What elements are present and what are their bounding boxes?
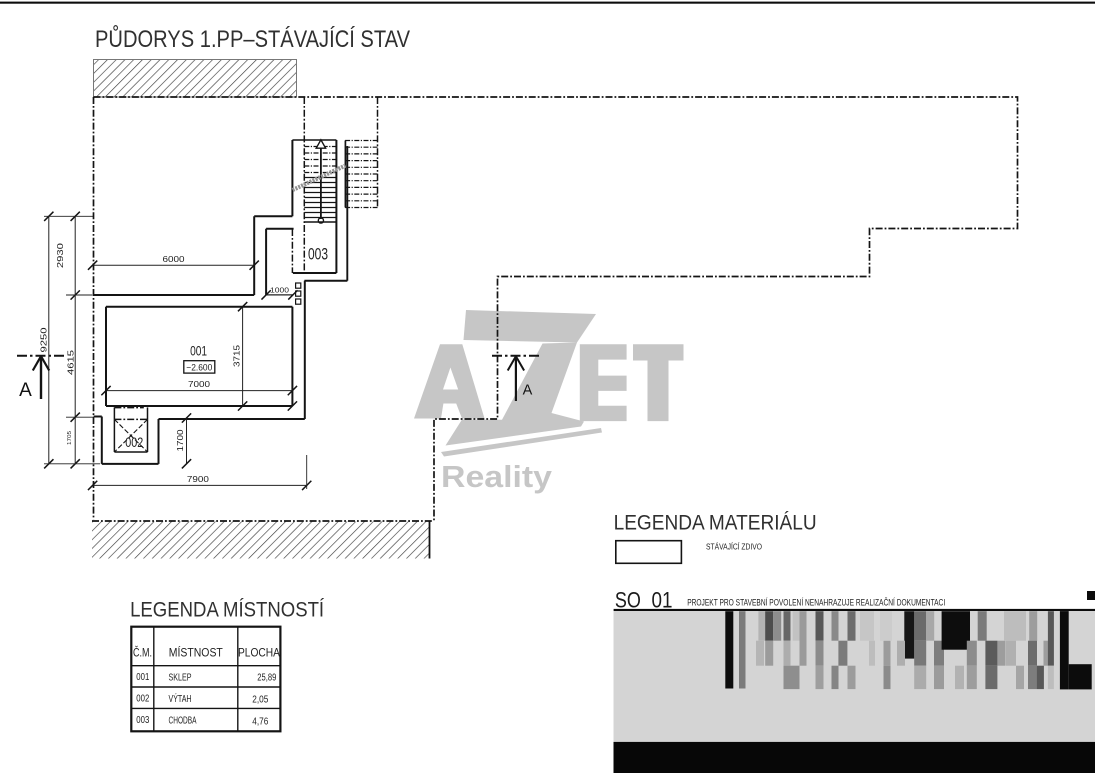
svg-text:A: A <box>19 380 32 401</box>
svg-text:01: 01 <box>652 588 673 613</box>
svg-text:SKLEP: SKLEP <box>169 673 192 684</box>
svg-text:002: 002 <box>136 694 149 705</box>
svg-text:2,05: 2,05 <box>252 695 268 706</box>
svg-text:2930: 2930 <box>56 242 65 268</box>
svg-text:001: 001 <box>190 343 207 359</box>
svg-text:3715: 3715 <box>232 344 241 367</box>
svg-text:25,89: 25,89 <box>257 673 276 684</box>
svg-text:PŮDORYS 1.PP–STÁVAJÍCÍ STAV: PŮDORYS 1.PP–STÁVAJÍCÍ STAV <box>95 24 411 53</box>
svg-text:7000: 7000 <box>188 380 211 389</box>
svg-text:7900: 7900 <box>187 475 210 484</box>
svg-text:CHODBA: CHODBA <box>169 716 197 727</box>
svg-text:1705: 1705 <box>67 431 73 445</box>
svg-text:Č.M.: Č.M. <box>133 647 152 660</box>
svg-text:Reality: Reality <box>441 459 553 494</box>
svg-text:A: A <box>523 383 533 399</box>
svg-text:003: 003 <box>136 715 149 726</box>
svg-text:001: 001 <box>136 672 149 683</box>
svg-text:STÁVAJÍCÍ ZDIVO: STÁVAJÍCÍ ZDIVO <box>706 543 762 552</box>
svg-text:MÍSTNOST: MÍSTNOST <box>169 645 224 660</box>
svg-text:9250: 9250 <box>40 327 49 353</box>
svg-text:1700: 1700 <box>176 429 185 452</box>
svg-text:4,76: 4,76 <box>252 717 268 728</box>
svg-text:PROJEKT PRO STAVEBNÍ POVOLENÍ: PROJEKT PRO STAVEBNÍ POVOLENÍ NENAHRAZUJ… <box>687 598 945 609</box>
svg-text:−2.600: −2.600 <box>186 362 212 372</box>
svg-text:003: 003 <box>308 245 328 264</box>
svg-text:002: 002 <box>125 434 143 450</box>
svg-text:4615: 4615 <box>67 349 76 375</box>
svg-text:PLOCHA: PLOCHA <box>238 646 280 660</box>
svg-text:6000: 6000 <box>163 255 186 264</box>
svg-text:LEGENDA MÍSTNOSTÍ: LEGENDA MÍSTNOSTÍ <box>130 599 324 622</box>
svg-text:LEGENDA MATERIÁLU: LEGENDA MATERIÁLU <box>614 512 817 535</box>
svg-text:1000: 1000 <box>270 286 289 295</box>
svg-text:VÝTAH: VÝTAH <box>169 692 192 705</box>
svg-text:SO: SO <box>615 588 641 613</box>
